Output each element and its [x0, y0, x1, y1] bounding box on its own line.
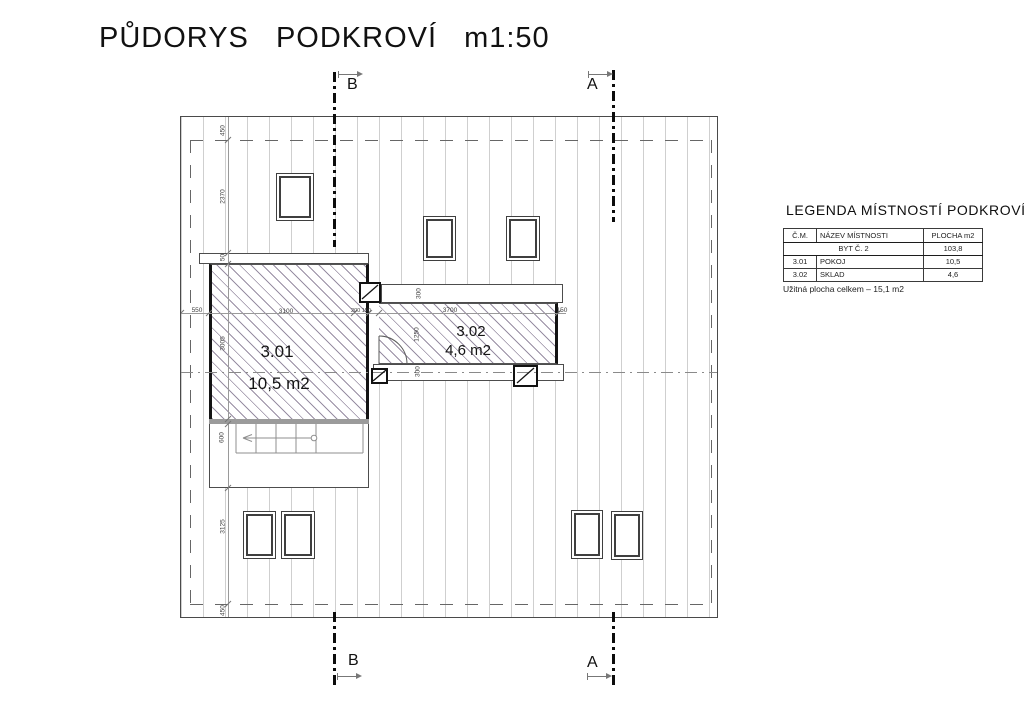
legend-cell-name: SKLAD: [817, 269, 924, 282]
legend-header-area: PLOCHA m2: [924, 229, 983, 243]
legend-header-cm: Č.M.: [784, 229, 817, 243]
dimension-label: 300: [415, 355, 422, 389]
dimension-label: 150: [545, 307, 579, 314]
legend-cell-name: BYT Č. 2: [784, 243, 924, 256]
section-label-a-bottom: A: [587, 654, 598, 672]
dimension-label: 50: [220, 241, 227, 275]
dimension-label: 3100: [269, 308, 303, 315]
dimension-label: 3700: [433, 307, 467, 314]
dimension-label: 3125: [220, 510, 227, 544]
section-label-a-top: A: [587, 76, 598, 94]
floor-plan: 3.01 10,5 m2 3.02 4,6 m2: [180, 116, 718, 618]
legend-header-name: NÁZEV MÍSTNOSTI: [817, 229, 924, 243]
legend-row-byt: BYT Č. 2 103,8: [784, 243, 983, 256]
section-label-b-top: B: [347, 76, 358, 94]
dimension-label: 450: [220, 114, 227, 148]
drawing-page: { "title": "PŮDORYS PODKROVÍ m1:50", "se…: [0, 0, 1024, 724]
dimension-label: 550: [180, 307, 214, 314]
legend-cell-cm: 3.02: [784, 269, 817, 282]
dimension-label: 200 150: [344, 308, 378, 315]
legend-cell-area: 10,5: [924, 256, 983, 269]
section-arrow-icon: [337, 673, 363, 680]
legend-row: 3.01 POKOJ 10,5: [784, 256, 983, 269]
section-line-b-bottom: [333, 612, 336, 688]
dimension-label: 600: [219, 421, 226, 455]
section-line-b-top: [333, 72, 336, 247]
legend-cell-area: 4,6: [924, 269, 983, 282]
legend-table: Č.M. NÁZEV MÍSTNOSTI PLOCHA m2 BYT Č. 2 …: [783, 228, 983, 282]
plan-linework: [181, 117, 717, 617]
drawing-title: PŮDORYS PODKROVÍ m1:50: [99, 22, 550, 55]
section-arrow-icon: [587, 673, 613, 680]
legend-header-row: Č.M. NÁZEV MÍSTNOSTI PLOCHA m2: [784, 229, 983, 243]
door-swing-arc: [379, 336, 407, 364]
legend-cell-cm: 3.01: [784, 256, 817, 269]
legend-title: LEGENDA MÍSTNOSTÍ PODKROVÍ: [786, 202, 1024, 218]
section-line-a-top: [612, 70, 615, 222]
dimension-ticks: [181, 137, 561, 607]
legend-cell-area: 103,8: [924, 243, 983, 256]
stair-direction-arrow: [243, 435, 317, 442]
legend-row: 3.02 SKLAD 4,6: [784, 269, 983, 282]
dimension-label: 1250: [414, 318, 421, 352]
dimension-label: 300: [416, 277, 423, 311]
legend-footer: Užitná plocha celkem – 15,1 m2: [783, 284, 904, 294]
column-slashes: [362, 285, 534, 383]
legend-cell-name: POKOJ: [817, 256, 924, 269]
dimension-label: 3005: [220, 327, 227, 361]
dimension-label: 450: [220, 594, 227, 628]
section-label-b-bottom: B: [348, 652, 359, 670]
dimension-label: 2370: [220, 180, 227, 214]
